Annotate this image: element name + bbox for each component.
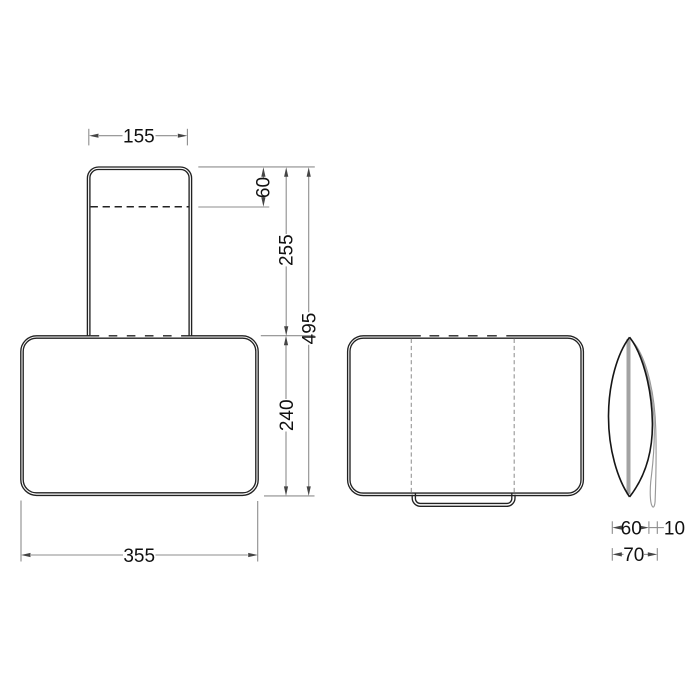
svg-text:70: 70 bbox=[623, 545, 644, 566]
svg-text:495: 495 bbox=[299, 313, 320, 345]
svg-text:240: 240 bbox=[277, 399, 298, 431]
svg-text:60: 60 bbox=[254, 177, 275, 198]
svg-text:255: 255 bbox=[277, 234, 298, 266]
svg-text:60: 60 bbox=[621, 518, 642, 539]
svg-text:355: 355 bbox=[123, 546, 155, 567]
svg-text:155: 155 bbox=[123, 126, 155, 147]
svg-text:10: 10 bbox=[664, 518, 685, 539]
